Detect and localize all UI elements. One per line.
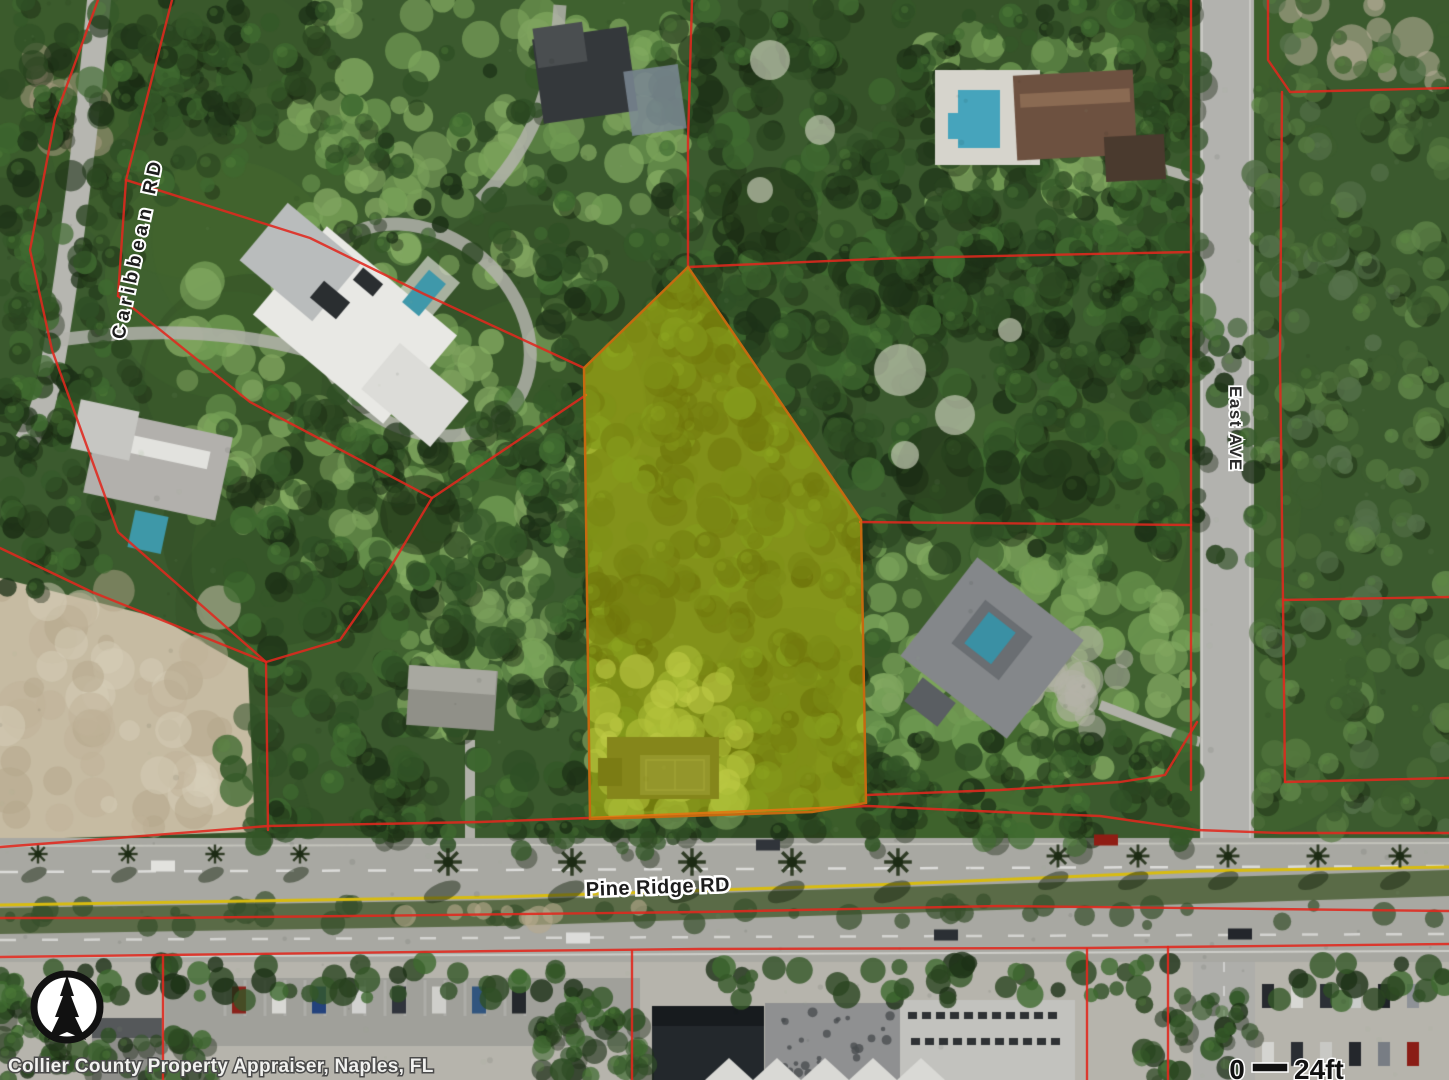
parcel-line xyxy=(1283,597,1449,600)
parcel-line xyxy=(1268,0,1449,92)
scale-bar-start-label: 0 xyxy=(1229,1054,1245,1080)
parcel-line xyxy=(866,722,1197,795)
parcel-line xyxy=(266,498,432,662)
road-label-pine-ridge-rd: Pine Ridge RD xyxy=(585,874,730,901)
attribution-text: Collier County Property Appraiser, Naple… xyxy=(8,1056,434,1077)
parcel-line xyxy=(0,906,1449,918)
parcel-line xyxy=(688,0,692,267)
scale-bar-end-label: 24ft xyxy=(1294,1054,1344,1080)
road-label-east-ave: East AVE xyxy=(1226,386,1245,472)
scale-bar: 0 24ft xyxy=(1229,1054,1344,1080)
parcel-line xyxy=(1285,778,1449,782)
map-viewport[interactable]: Caribbean RD East AVE Pine Ridge RD 0 24… xyxy=(0,0,1449,1080)
highlighted-parcel[interactable] xyxy=(584,267,866,819)
scale-bar-rule xyxy=(1252,1063,1288,1072)
parcel-line xyxy=(118,296,586,498)
parcel-line xyxy=(0,944,1449,957)
parcel-line xyxy=(126,180,584,368)
parcel-line xyxy=(688,252,1191,267)
north-arrow-icon xyxy=(34,974,100,1040)
parcel-line xyxy=(1280,92,1285,782)
parcel-line xyxy=(0,548,266,662)
parcel-line xyxy=(30,0,268,830)
parcel-line xyxy=(860,522,1191,525)
